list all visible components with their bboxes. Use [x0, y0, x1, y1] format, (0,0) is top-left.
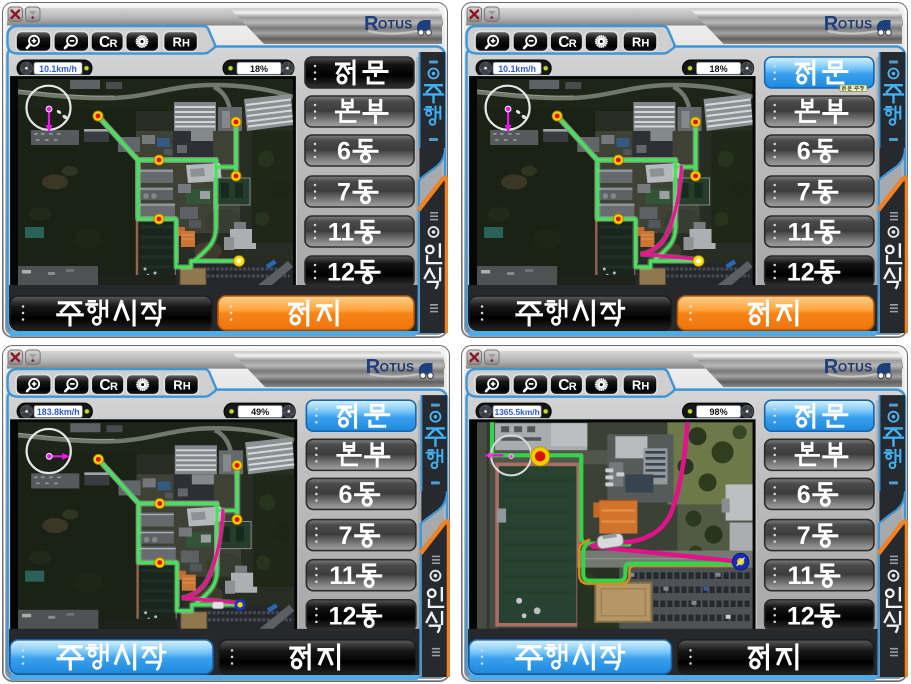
svg-text:10.1km/h: 10.1km/h: [39, 64, 77, 74]
svg-text:18%: 18%: [250, 64, 268, 74]
svg-text:49%: 49%: [251, 407, 269, 417]
svg-text:18%: 18%: [710, 64, 728, 74]
svg-text:10.1km/h: 10.1km/h: [498, 64, 536, 74]
svg-text:98%: 98%: [710, 407, 728, 417]
svg-text:1365.5km/h: 1365.5km/h: [494, 407, 539, 417]
svg-text:183.8km/h: 183.8km/h: [37, 407, 80, 417]
